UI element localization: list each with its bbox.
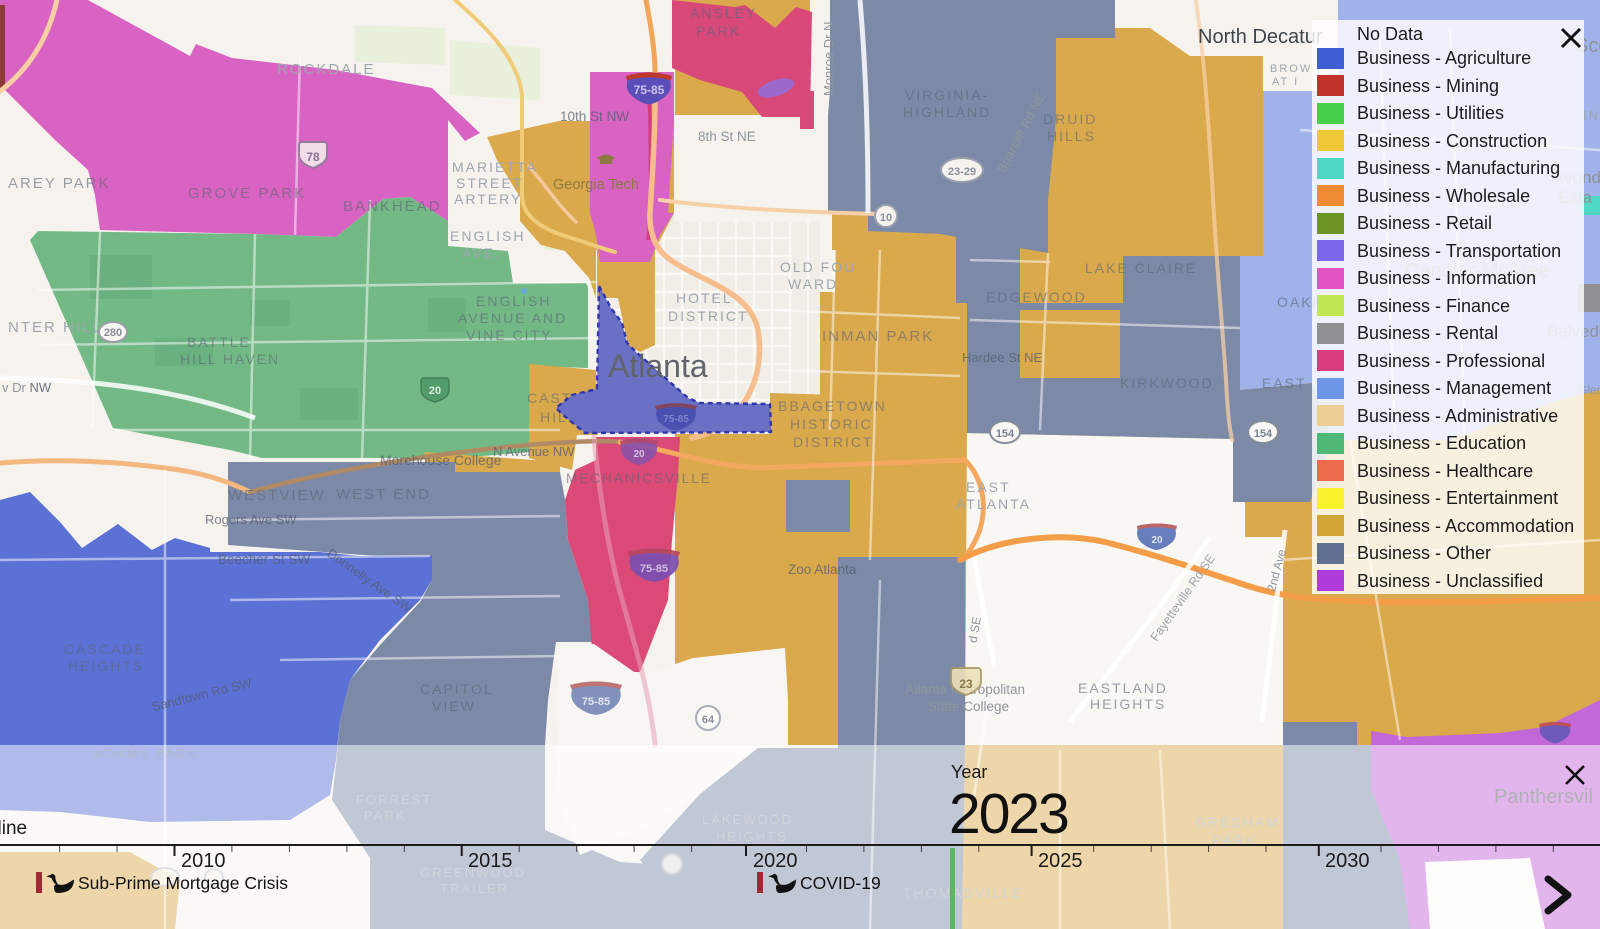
svg-text:Zoo Atlanta: Zoo Atlanta	[788, 562, 857, 577]
svg-text:64: 64	[702, 714, 715, 726]
svg-text:v Dr NW: v Dr NW	[2, 380, 52, 395]
svg-text:Atlanta: Atlanta	[608, 348, 708, 384]
svg-text:AT I: AT I	[1272, 76, 1299, 88]
svg-text:Hardee St NE: Hardee St NE	[962, 350, 1043, 365]
svg-text:BATTLE: BATTLE	[187, 334, 251, 350]
svg-text:280: 280	[104, 327, 122, 339]
svg-text:Morehouse College: Morehouse College	[380, 452, 502, 468]
svg-text:STREET: STREET	[456, 175, 523, 191]
svg-text:EAST: EAST	[966, 479, 1011, 495]
svg-text:VINE CITY: VINE CITY	[466, 327, 552, 343]
svg-text:WEST END: WEST END	[336, 486, 431, 503]
svg-text:VIRGINIA-: VIRGINIA-	[905, 87, 989, 103]
svg-text:20: 20	[633, 449, 645, 460]
svg-text:HEIGHTS: HEIGHTS	[1090, 696, 1166, 712]
svg-text:ARTERY: ARTERY	[454, 191, 522, 207]
svg-text:10th St NW: 10th St NW	[560, 109, 629, 124]
svg-text:NTER HILL: NTER HILL	[8, 319, 103, 336]
svg-text:INMAN PARK: INMAN PARK	[822, 328, 934, 345]
svg-text:23-29: 23-29	[948, 166, 976, 178]
svg-text:State College: State College	[928, 699, 1009, 714]
svg-text:PARK: PARK	[696, 23, 741, 39]
svg-text:75-85: 75-85	[640, 563, 668, 575]
svg-text:WARD: WARD	[788, 276, 838, 292]
svg-text:Georgia Tech: Georgia Tech	[553, 177, 639, 193]
svg-text:23: 23	[959, 677, 973, 691]
svg-text:20: 20	[1151, 535, 1163, 546]
svg-text:154: 154	[1254, 428, 1273, 440]
svg-text:ATLANTA: ATLANTA	[956, 496, 1031, 512]
svg-text:WESTVIEW: WESTVIEW	[228, 487, 326, 504]
svg-text:HOTEL: HOTEL	[676, 290, 733, 306]
svg-text:MARIETTA: MARIETTA	[452, 159, 538, 175]
svg-text:KIRKWOOD: KIRKWOOD	[1120, 375, 1214, 391]
svg-text:HILL HAVEN: HILL HAVEN	[180, 351, 280, 367]
svg-text:8th St NE: 8th St NE	[698, 129, 756, 144]
svg-text:MECHANICSVILLE: MECHANICSVILLE	[566, 471, 712, 486]
svg-text:VIEW: VIEW	[432, 698, 476, 714]
svg-text:EDGEWOOD: EDGEWOOD	[986, 289, 1087, 305]
svg-text:HIGHLAND: HIGHLAND	[903, 104, 991, 120]
svg-text:BROW: BROW	[1270, 63, 1312, 75]
svg-text:INGL: INGL	[1583, 108, 1600, 123]
svg-text:Beecher St SW: Beecher St SW	[218, 552, 311, 567]
svg-text:EASTLAND: EASTLAND	[1078, 680, 1168, 696]
svg-text:CASCADE: CASCADE	[64, 641, 146, 657]
svg-text:AVE.: AVE.	[462, 245, 501, 261]
svg-text:75-85: 75-85	[663, 414, 689, 425]
svg-text:DISTRICT: DISTRICT	[793, 434, 874, 450]
svg-text:HILLS: HILLS	[1047, 128, 1096, 144]
svg-text:DRUID: DRUID	[1043, 111, 1097, 127]
svg-text:EAST: EAST	[1262, 375, 1307, 391]
svg-text:N Avenue NW: N Avenue NW	[493, 444, 575, 459]
svg-text:OLD FOU: OLD FOU	[780, 259, 856, 275]
svg-text:HISTORIC: HISTORIC	[790, 416, 873, 432]
svg-text:78: 78	[306, 150, 320, 164]
svg-text:GROVE PARK: GROVE PARK	[188, 185, 306, 202]
svg-text:20: 20	[429, 385, 441, 397]
svg-text:ENGLISH: ENGLISH	[476, 293, 551, 309]
svg-text:ANSLEY: ANSLEY	[690, 5, 757, 21]
svg-text:BANKHEAD: BANKHEAD	[343, 198, 442, 215]
svg-text:Monroe Dr N: Monroe Dr N	[821, 22, 836, 96]
svg-text:CAPITOL: CAPITOL	[420, 681, 494, 697]
svg-text:AVENUE AND: AVENUE AND	[458, 310, 567, 326]
svg-text:DISTRICT: DISTRICT	[668, 308, 749, 324]
svg-text:HEIGHTS: HEIGHTS	[68, 658, 144, 674]
svg-text:Rogers Ave SW: Rogers Ave SW	[205, 512, 297, 527]
svg-text:BBAGETOWN: BBAGETOWN	[778, 398, 887, 414]
svg-text:LAKE CLAIRE: LAKE CLAIRE	[1085, 260, 1197, 276]
svg-text:75-85: 75-85	[582, 696, 610, 708]
svg-text:AREY PARK: AREY PARK	[8, 175, 110, 192]
svg-text:ENGLISH: ENGLISH	[450, 228, 525, 244]
svg-text:75-85: 75-85	[634, 83, 665, 97]
svg-text:ROCKDALE: ROCKDALE	[277, 61, 376, 78]
svg-text:10: 10	[880, 212, 892, 224]
svg-text:North Decatur: North Decatur	[1198, 26, 1323, 48]
svg-text:154: 154	[996, 428, 1015, 440]
